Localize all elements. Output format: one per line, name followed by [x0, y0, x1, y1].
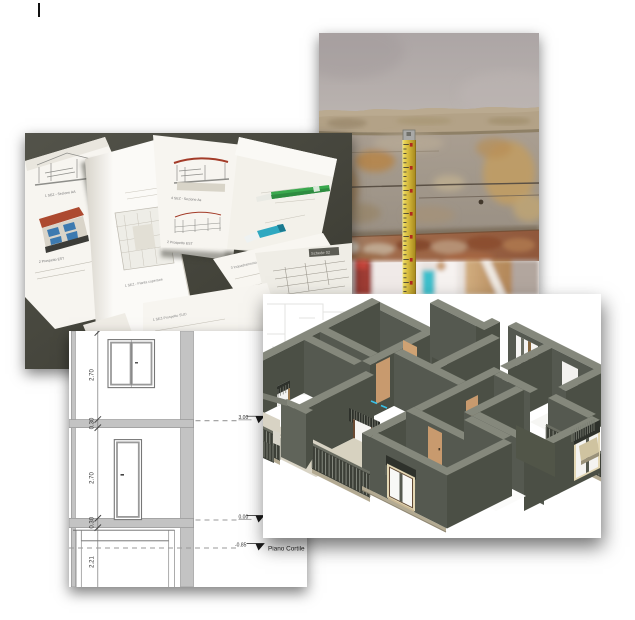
svg-text:-0.85: -0.85: [235, 543, 247, 549]
svg-text:0.30: 0.30: [90, 516, 96, 528]
svg-text:2.21: 2.21: [90, 556, 96, 568]
svg-text:2.70: 2.70: [90, 472, 96, 484]
svg-text:2.70: 2.70: [90, 369, 96, 381]
svg-text:0.30: 0.30: [90, 417, 96, 429]
svg-text:Piano Cortile: Piano Cortile: [268, 546, 305, 553]
